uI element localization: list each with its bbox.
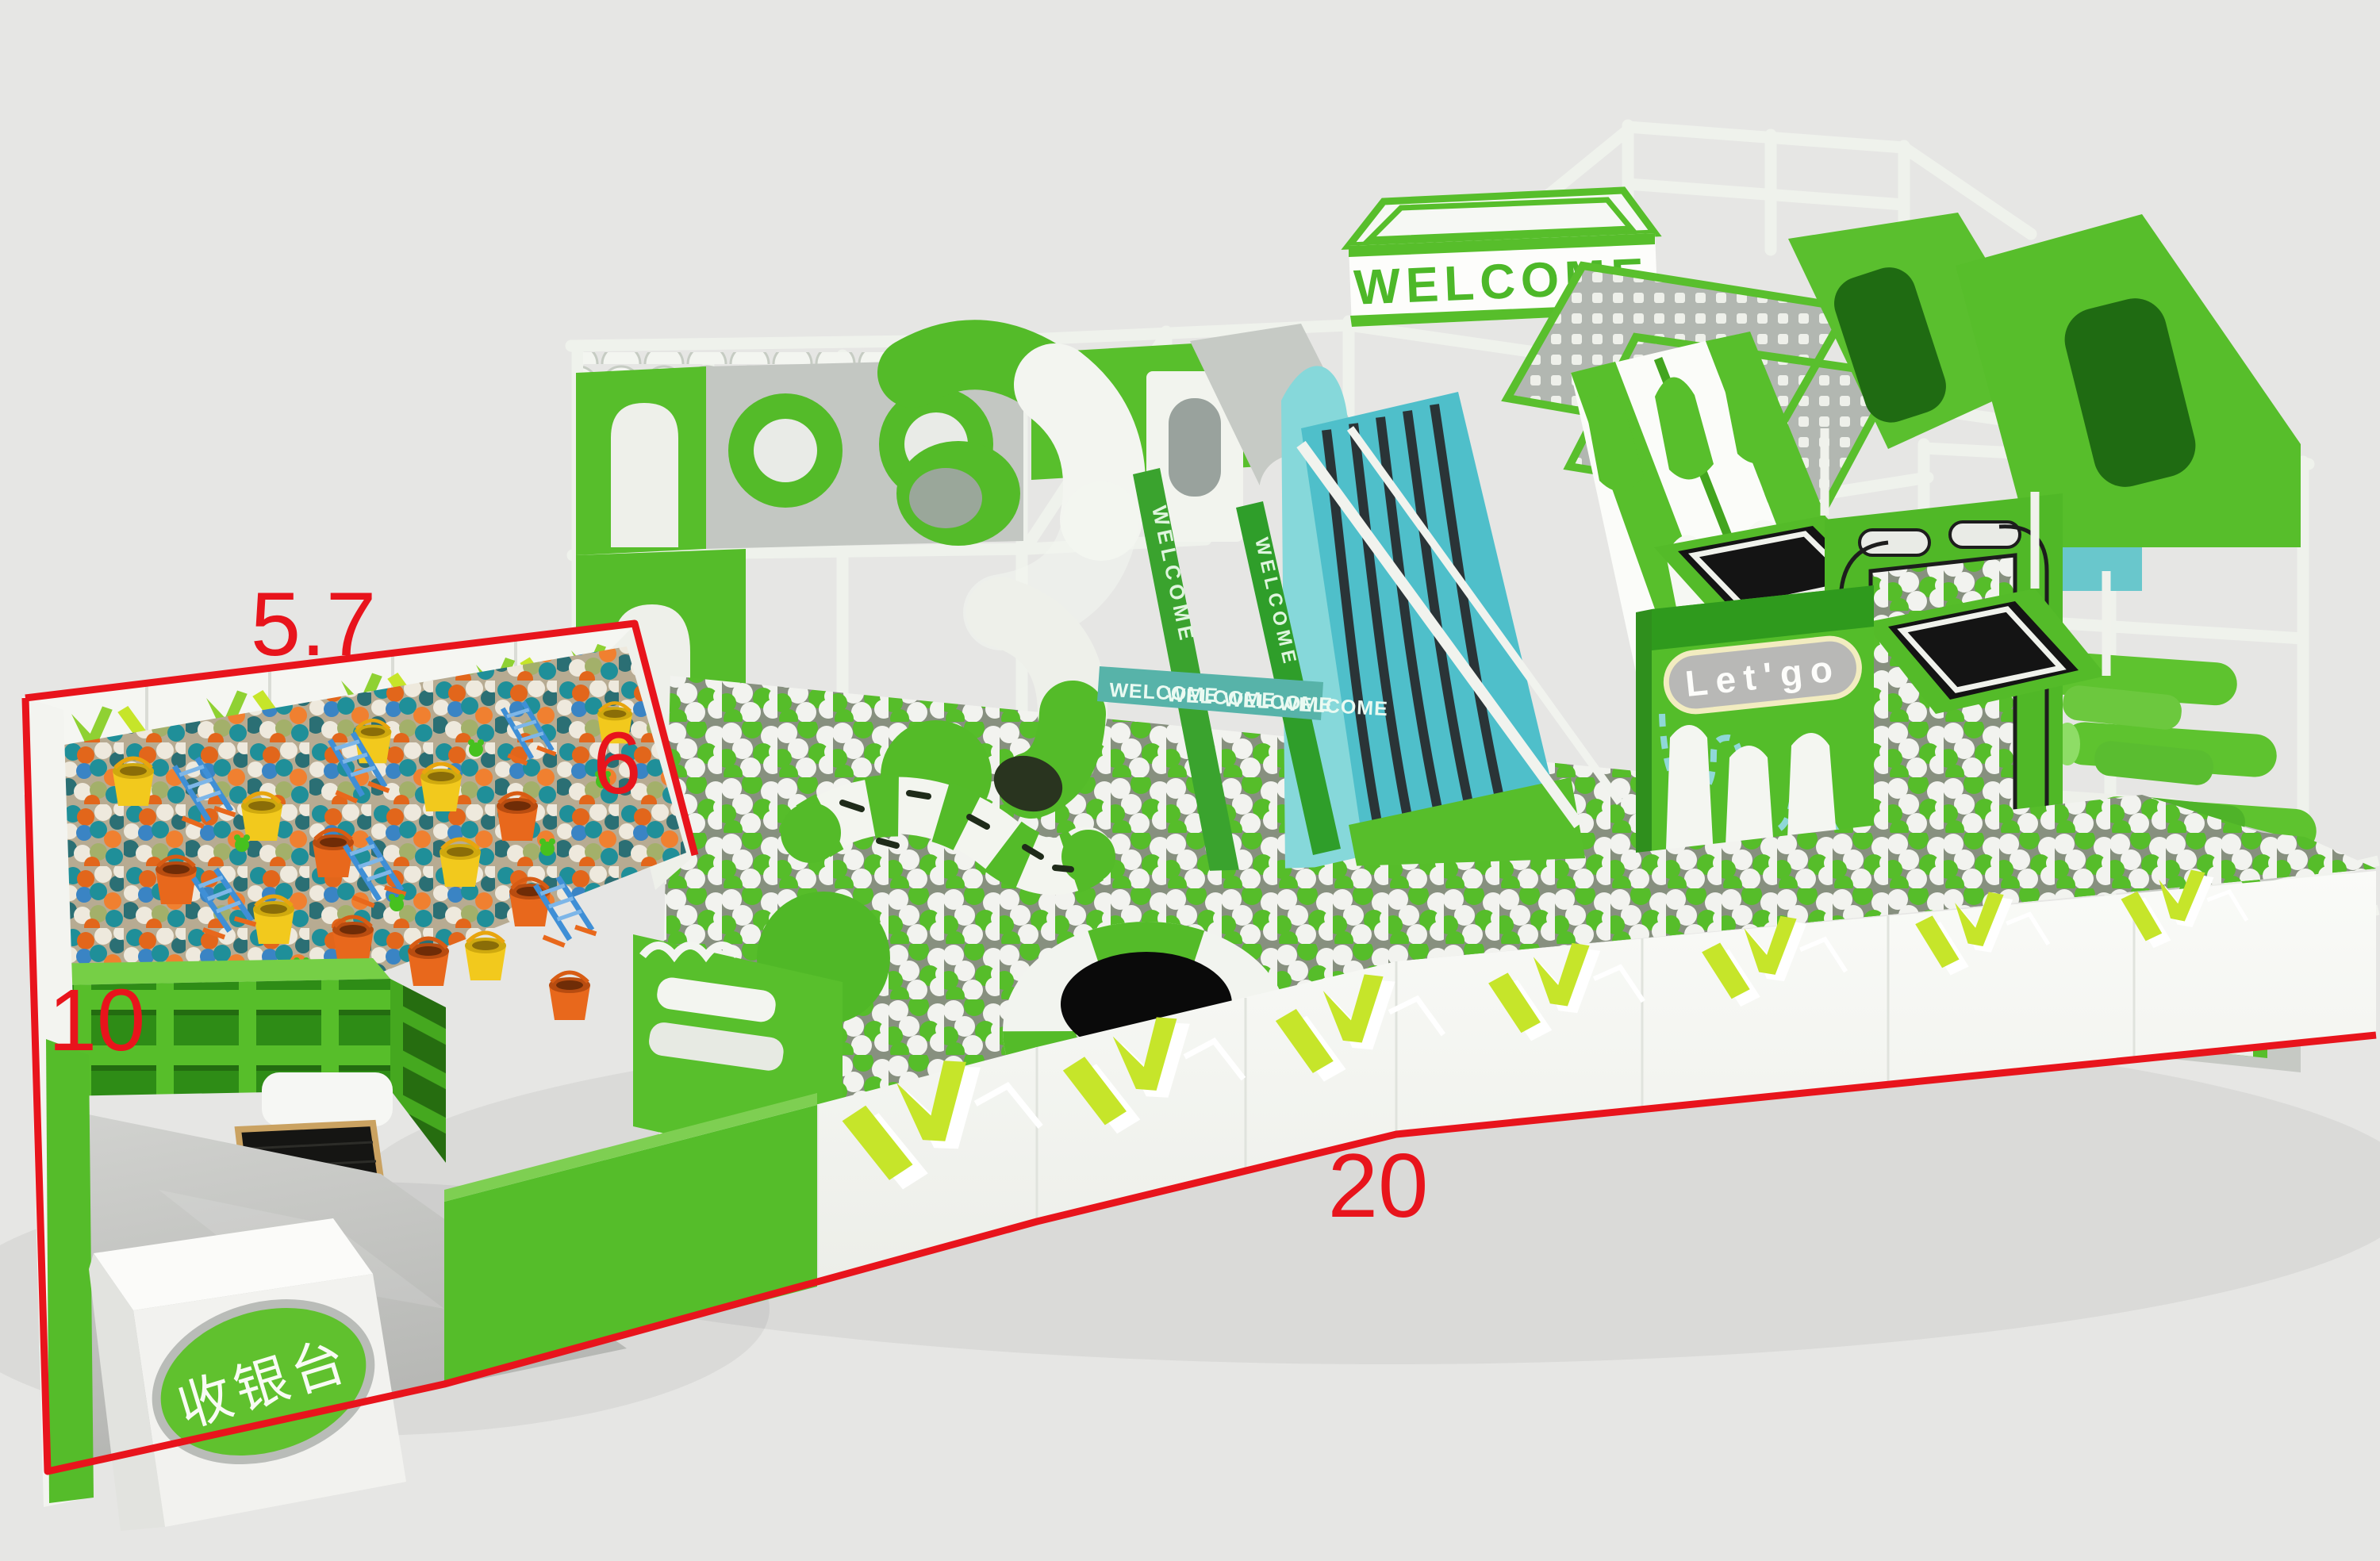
dimension-top-label: 5.7 bbox=[251, 574, 376, 675]
dimension-bottom-label: 20 bbox=[1328, 1136, 1429, 1237]
playground-render: WELCOME bbox=[0, 0, 2380, 1561]
cashier-counter: 收银台 bbox=[89, 1218, 406, 1531]
dimension-left-label: 10 bbox=[48, 972, 145, 1069]
arch-window bbox=[611, 403, 678, 547]
dimension-right-label: 6 bbox=[593, 715, 641, 812]
bench bbox=[262, 1072, 393, 1126]
